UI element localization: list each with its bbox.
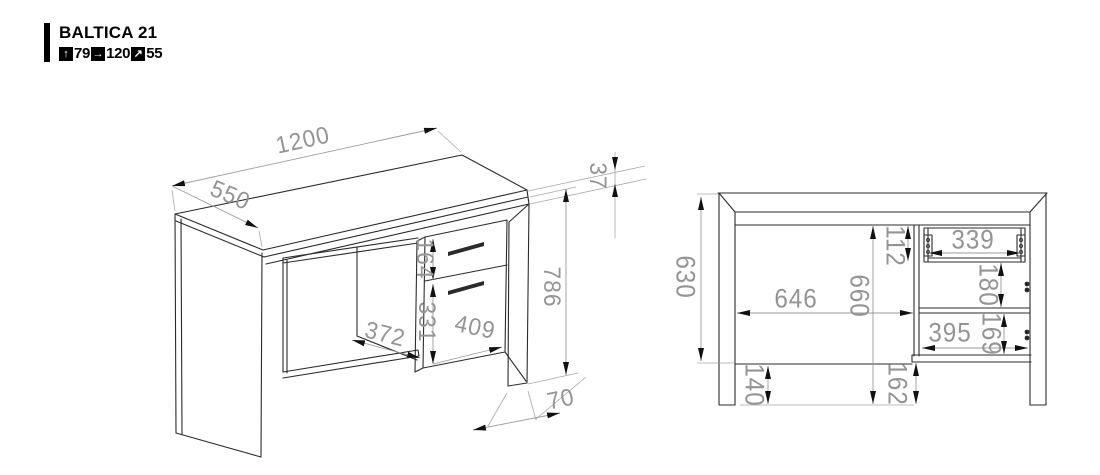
iso-dim-door-front-height: 331: [414, 302, 438, 343]
iso-extension-lines: [172, 131, 646, 426]
iso-dim-drawer-front-height: 164: [412, 239, 436, 280]
front-dim-middle-niche-height: 180: [975, 263, 1002, 306]
front-dim-lower-niche-height: 169: [978, 312, 1005, 355]
front-dim-opening-width: 646: [774, 286, 817, 313]
front-dim-drawer-niche-width: 339: [951, 227, 994, 254]
front-dim-bottom-rail-height: 140: [741, 363, 768, 406]
iso-drawer-handle: [448, 242, 484, 256]
iso-dim-total-height: 786: [539, 267, 563, 308]
front-dim-drawer-niche-height: 112: [882, 225, 909, 266]
front-dim-lower-niche-width: 395: [928, 320, 971, 347]
iso-dim-top-thickness: 37: [585, 162, 609, 189]
front-door-hinges: [1025, 282, 1030, 341]
technical-drawing-page: BALTICA 21 ↑ 79 → 120 ↗ 55: [0, 0, 1100, 475]
front-dim-side-panel-height: 630: [672, 255, 699, 298]
iso-door-handle: [448, 281, 484, 295]
iso-dim-foot-height: 70: [545, 385, 577, 414]
front-dim-opening-height: 660: [846, 274, 873, 317]
front-dim-pedestal-ground-clearance: 162: [884, 362, 911, 405]
